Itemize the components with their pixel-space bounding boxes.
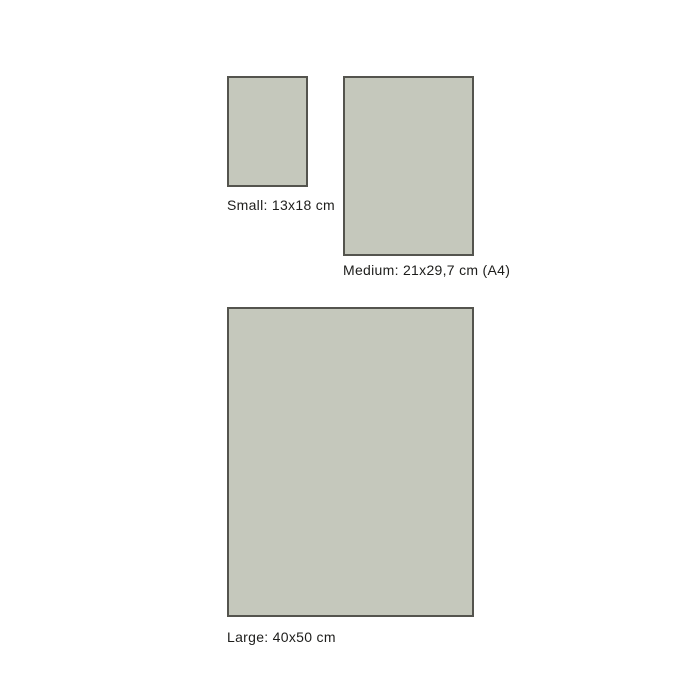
size-label-medium: Medium: 21x29,7 cm (A4)	[343, 262, 510, 278]
size-swatch-medium	[343, 76, 474, 256]
size-label-large: Large: 40x50 cm	[227, 629, 336, 645]
size-label-small: Small: 13x18 cm	[227, 197, 335, 213]
size-swatch-large	[227, 307, 474, 617]
size-guide-diagram: Small: 13x18 cm Medium: 21x29,7 cm (A4) …	[0, 0, 700, 700]
size-swatch-small	[227, 76, 308, 187]
